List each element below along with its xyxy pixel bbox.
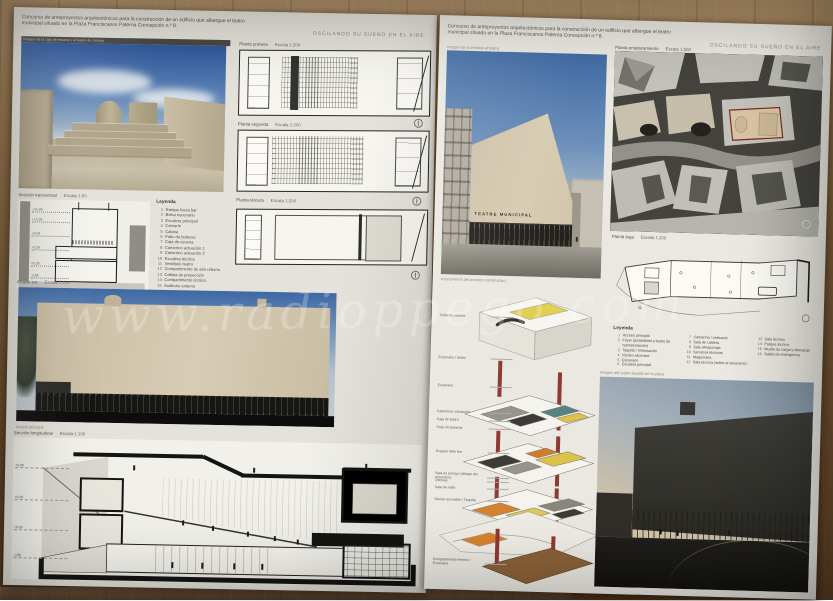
plan-2-scale: Escala 1:200: [275, 122, 300, 127]
axo-label: Cubierta exterior: [440, 313, 492, 318]
rooftop-bump: [680, 402, 695, 415]
entry-render: TEATRE MUNICIPAL: [441, 50, 607, 278]
legend-column-2: 7 Camerino / vestuario 8 Sala de caldera…: [683, 335, 750, 371]
exploded-axonometric: Cubierta exteriorEscenario / teatroEscen…: [432, 283, 610, 590]
groundplan-scale: Escala 1:200: [641, 235, 667, 241]
pedestrian: [530, 240, 532, 245]
entry-motto: OSCILANDO SU SUEÑO EN EL AIRE: [710, 43, 822, 52]
plan-1-scale: Escala 1:200: [275, 42, 300, 47]
groundplan-name: Planta baja: [612, 234, 634, 240]
groundplan-label: Planta bajaEscala 1:200: [612, 234, 666, 241]
street: [441, 243, 602, 279]
pedestrian: [728, 530, 730, 535]
plan-rooms-left: [244, 215, 262, 259]
entry-motto: OSCILANDO SU SUEÑO EN EL AIRE: [313, 31, 425, 39]
plan-2-name: Planta segunda: [238, 121, 269, 127]
pedestrian: [677, 531, 679, 536]
axo-label: Sala de radio: [435, 485, 487, 490]
legend-items: 1 Rampa hacia bar 2 Bolsa escenario 3 Es…: [155, 207, 231, 289]
night-render: [594, 377, 814, 593]
legend-item-number: 6: [612, 362, 619, 367]
axo-label: Patio de butacas: [436, 425, 488, 430]
axo-label: Escenario: [438, 383, 490, 388]
competition-title: Concurso de anteproyectos arquitectónico…: [22, 14, 322, 32]
plan-1-label: Planta primeraEscala 1:200: [239, 41, 300, 47]
site-map-svg: [610, 51, 823, 237]
level-mark: +15,08: [32, 207, 70, 213]
plan-rooms-left: [245, 137, 269, 186]
legend-columns: 1 Acceso principal 2 Foyer (posibilidad …: [612, 333, 815, 373]
plan-3-name: Planta tercera: [236, 197, 263, 203]
axo-label: Compartimento técnico / Escenario: [433, 557, 485, 566]
axonometric-caption: Axonometría del proceso constructivo: [441, 276, 506, 283]
long-section-label: Sección longitudinalEscala 1:100: [14, 430, 86, 436]
plan-2-label: Planta segundaEscala 1:200: [238, 121, 301, 127]
axo-label: Oficinas: [435, 478, 487, 483]
floor-plan-third: [235, 209, 428, 266]
stone-wall-left: [19, 89, 54, 189]
north-arrow-icon: [411, 271, 420, 280]
level-mark: +9,08: [15, 463, 69, 469]
presentation-board-left: Concurso de anteproyectos arquitectónico…: [3, 7, 437, 593]
pedestrian: [660, 530, 662, 535]
level-mark: +13,58: [32, 217, 70, 223]
legend-right: Leyenda 1 Acceso principal 2 Foyer (posi…: [612, 326, 815, 373]
cubic-volume: [128, 103, 157, 125]
elevation-caption: Alzado principal: [16, 424, 44, 430]
plan-rooms-left: [247, 57, 271, 109]
plan-seating-rows: [272, 136, 364, 184]
ground-floor-plan: [609, 241, 817, 331]
legend-item-number: 15: [155, 282, 162, 288]
plan-1-name: Planta primera: [239, 41, 268, 47]
level-mark: +0,00: [14, 525, 68, 531]
legend-item-number: 2: [613, 338, 620, 348]
plan-open-hall: [274, 215, 368, 260]
legend-item-number: 12: [683, 359, 690, 364]
axo-label: Núcleo accesible / Taquilla: [434, 497, 486, 502]
cross-section-drawing: +15,08+13,58+9,08+5,58+0,00-3,88: [17, 199, 151, 292]
cloud: [57, 69, 152, 94]
rooftop-box: [257, 298, 267, 308]
legend-column-1: 1 Acceso principal 2 Foyer (posibilidad …: [612, 333, 679, 369]
cross-section-scale: Escala 1:50: [64, 193, 87, 198]
axo-label: Espacio libre bar: [436, 449, 488, 454]
north-arrow-icon: [412, 197, 421, 206]
legend-left: Leyenda 1 Rampa hacia bar 2 Bolsa escena…: [155, 200, 231, 289]
elevation-scale: Escala 1:100: [44, 280, 69, 285]
legend-item-text: Salida de emergencia: [764, 352, 800, 358]
neighbor-building-left: [442, 108, 473, 248]
long-section-levels: +9,08+5,58+0,00-3,88: [11, 437, 422, 587]
legend-item: 15 Auditorio externo: [155, 282, 229, 289]
cross-section-label: Sección transversalEscala 1:50: [18, 192, 86, 198]
legend-item-text: Sala técnica (sobre el escenario): [693, 360, 747, 366]
level-mark: +9,08: [32, 231, 70, 237]
legend-item-text: Escalera principal: [622, 363, 651, 369]
level-mark: -3,88: [13, 553, 67, 559]
elevation-render: [16, 287, 337, 427]
site-location-map: [610, 51, 823, 237]
axo-label: Escenario / teatro: [438, 355, 490, 360]
long-section-name: Sección longitudinal: [14, 430, 53, 436]
legend-column-3: 13 Sala técnica 14 Parque técnico 15 Mue…: [754, 337, 813, 373]
cross-section-name: Sección transversal: [18, 192, 56, 198]
ground-plan-svg: [609, 241, 817, 331]
legend-item: 12 Sala técnica (sobre el escenario): [683, 359, 749, 366]
level-mark: +5,58: [15, 495, 69, 501]
section-level-marks: +15,08+13,58+9,08+5,58+0,00-3,88: [17, 199, 151, 292]
siteplan-scale: Escala 1:500: [666, 46, 692, 52]
floor-plan-first: [238, 50, 431, 117]
night-render-caption: Imagen del teatro situado en la plaza: [600, 370, 664, 377]
wooden-table-background: Concurso de anteproyectos arquitectónico…: [0, 0, 833, 600]
maquette-photo: [19, 42, 227, 192]
plan-shaded-room: [365, 215, 402, 261]
plan-ramp-line: [412, 214, 435, 261]
level-mark: +0,00: [31, 261, 69, 267]
axo-label: Caja de teatro: [437, 417, 489, 422]
elevation-label: Alzado surEscala 1:100: [17, 279, 70, 285]
competition-title: Concurso de anteproyectos arquitectónico…: [447, 23, 747, 43]
presentation-board-right: Concurso de anteproyectos arquitectónico…: [424, 15, 832, 600]
long-section-drawing: +9,08+5,58+0,00-3,88: [11, 437, 422, 587]
plan-3-label: Planta terceraEscala 1:200: [236, 197, 296, 203]
legend-item-text: Auditorio externo: [164, 283, 195, 289]
long-section-scale: Escala 1:100: [60, 431, 85, 436]
cylindrical-volume: [96, 101, 123, 125]
neighbor-mass-left: [596, 492, 634, 537]
elevation-name: Alzado sur: [17, 279, 38, 284]
north-arrow-icon: [414, 119, 423, 128]
legend-item-number: 16: [755, 352, 762, 357]
rooftop-cylinder: [104, 295, 122, 306]
legend-title: Leyenda: [156, 200, 230, 206]
plan-3-scale: Escala 1:200: [271, 198, 296, 203]
stone-facade: [36, 302, 330, 397]
axo-label: Camerinos actuación: [437, 409, 489, 414]
plan-stage-bar: [290, 56, 299, 110]
legend-item: 6 Escalera principal: [612, 362, 678, 369]
floor-plan-second: [236, 130, 429, 193]
level-mark: +5,58: [31, 245, 69, 251]
axonometric-labels: Cubierta exteriorEscenario / teatroEscen…: [432, 283, 610, 590]
